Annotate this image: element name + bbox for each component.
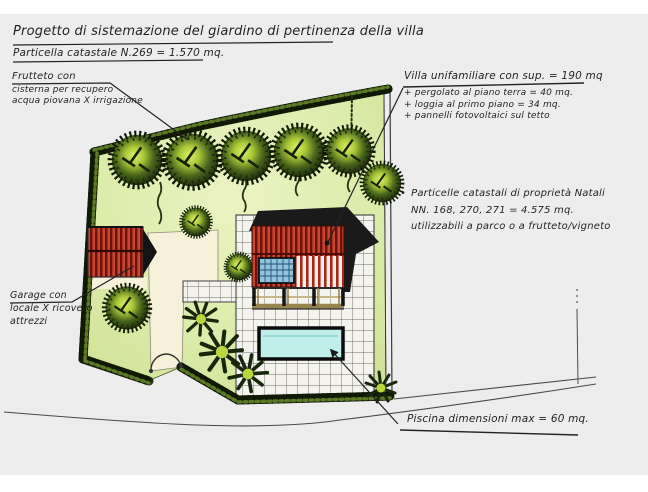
title-underline bbox=[13, 42, 333, 45]
frutteto-line-2: cisterna per recupero bbox=[12, 85, 143, 96]
particelle-line-2: NN. 168, 270, 271 = 4.575 mq. bbox=[400, 203, 611, 220]
piscina-underline bbox=[400, 430, 578, 435]
villa-title: Villa unifamiliare con sup. = 190 mq bbox=[404, 70, 603, 82]
particelle-bullet: • bbox=[400, 186, 406, 203]
frutteto-line-3: acqua piovana X irrigazione bbox=[12, 96, 143, 107]
annotation-particelle: • Particelle catastali di proprietà Nata… bbox=[400, 186, 611, 236]
villa-item-1: + pergolato al piano terra = 40 mq. bbox=[404, 88, 603, 100]
particelle-line-1: Particelle catastali di proprietà Natali bbox=[411, 186, 605, 203]
villa-item-3: + pannelli fotovoltaici sul tetto bbox=[404, 111, 603, 123]
villa-item-2: + loggia al primo piano = 34 mq. bbox=[404, 100, 603, 112]
villa-loggia-band bbox=[296, 256, 344, 287]
photovoltaic-panel bbox=[259, 258, 294, 283]
subtitle-underline bbox=[13, 60, 203, 62]
scanned-site-plan-page: Progetto di sistemazione del giardino di… bbox=[0, 0, 648, 492]
annotation-frutteto: Frutteto con cisterna per recupero acqua… bbox=[12, 71, 143, 107]
garage-line-2: locale X ricovero bbox=[10, 302, 93, 315]
swimming-pool bbox=[259, 328, 343, 359]
annotation-piscina: Piscina dimensioni max = 60 mq. bbox=[407, 413, 589, 425]
page-title: Progetto di sistemazione del giardino di… bbox=[13, 24, 424, 39]
garage-line-1: Garage con bbox=[10, 289, 93, 302]
particelle-line-3: utilizzabili a parco o a frutteto/vignet… bbox=[400, 219, 611, 236]
page-subtitle: Particella catastale N.269 = 1.570 mq. bbox=[13, 47, 224, 59]
annotation-villa: Villa unifamiliare con sup. = 190 mq + p… bbox=[404, 70, 603, 123]
garage-line-3: attrezzi bbox=[10, 315, 93, 328]
frutteto-line-1: Frutteto con bbox=[12, 71, 143, 82]
villa-leader-dot bbox=[325, 241, 330, 246]
annotation-garage: Garage con locale X ricovero attrezzi bbox=[10, 289, 93, 328]
